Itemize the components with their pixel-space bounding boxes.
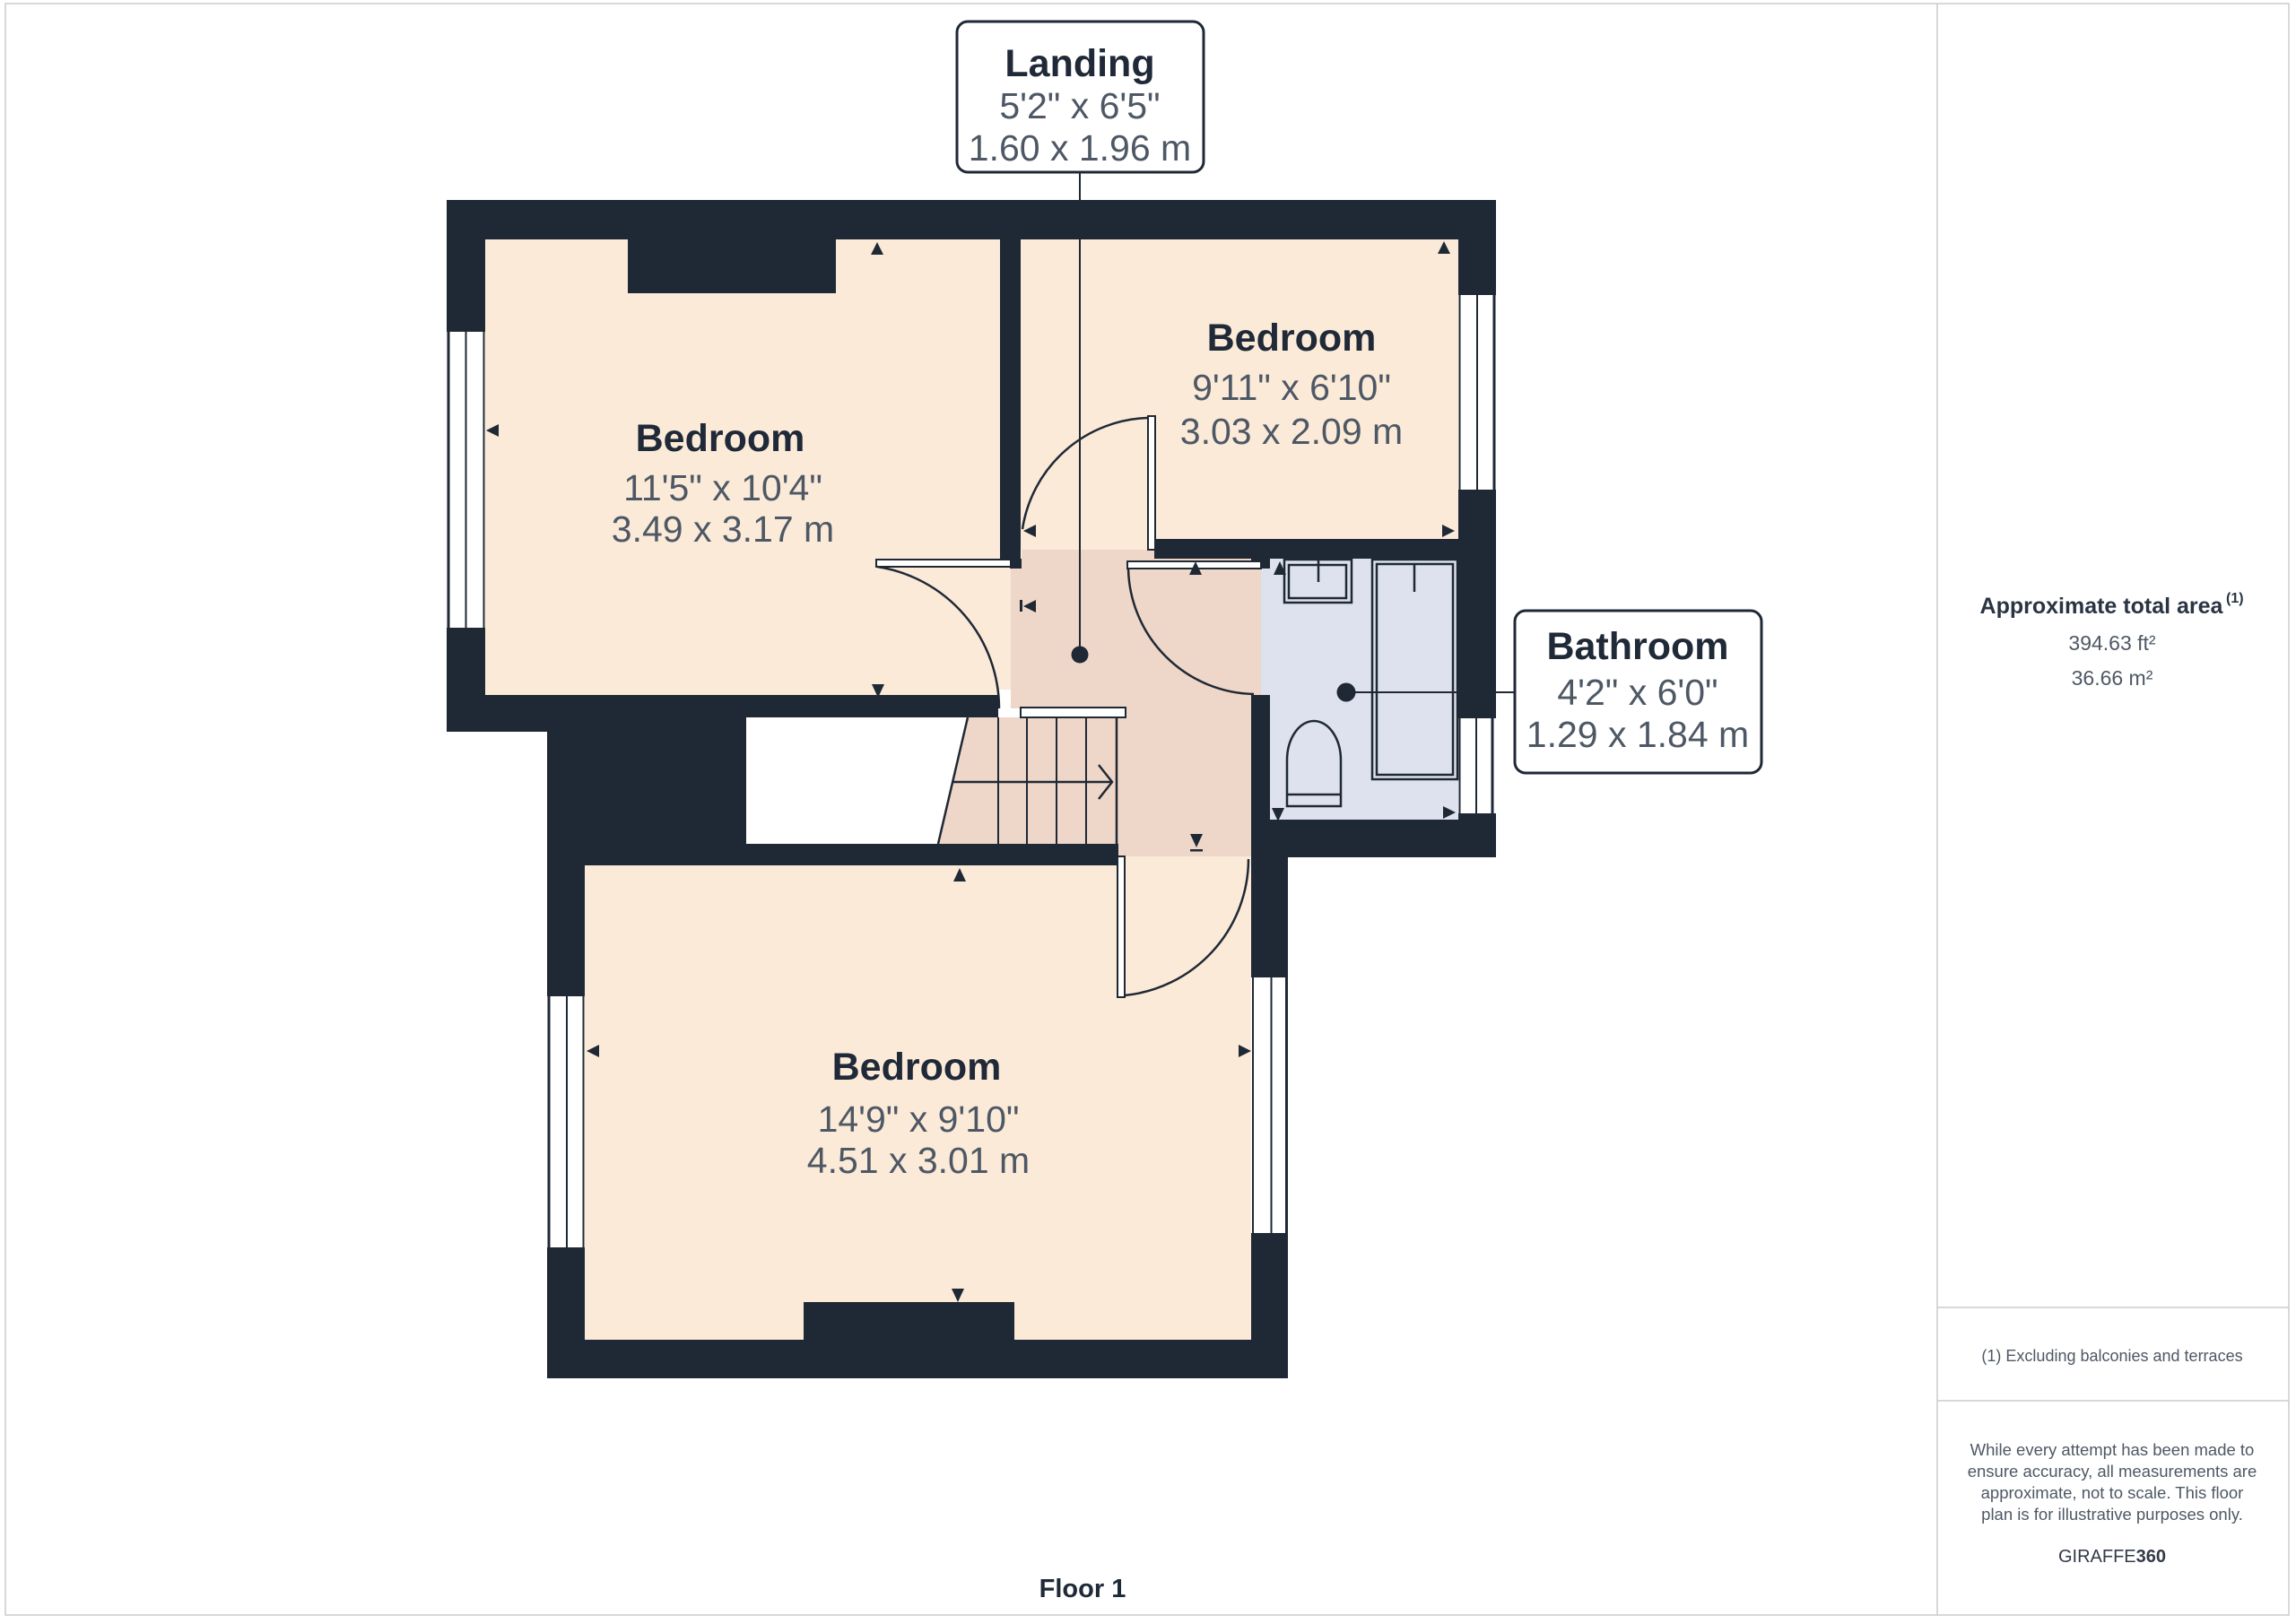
svg-text:While every attempt has been m: While every attempt has been made to	[1970, 1440, 2255, 1459]
svg-text:Approximate total area: Approximate total area	[1980, 594, 2224, 619]
svg-text:4'2" x 6'0": 4'2" x 6'0"	[1557, 672, 1718, 713]
svg-text:5'2" x 6'5": 5'2" x 6'5"	[999, 85, 1160, 126]
svg-text:394.63 ft²: 394.63 ft²	[2068, 631, 2156, 655]
svg-text:14'9" x 9'10": 14'9" x 9'10"	[818, 1099, 1020, 1140]
svg-text:1.60 x 1.96 m: 1.60 x 1.96 m	[969, 127, 1191, 169]
svg-text:3.49 x 3.17 m: 3.49 x 3.17 m	[612, 508, 834, 550]
svg-text:Bathroom: Bathroom	[1546, 625, 1728, 668]
svg-text:Floor 1: Floor 1	[1039, 1575, 1126, 1603]
svg-text:9'11" x 6'10": 9'11" x 6'10"	[1192, 367, 1391, 408]
svg-text:(1): (1)	[2226, 591, 2244, 606]
svg-text:3.03 x 2.09 m: 3.03 x 2.09 m	[1180, 411, 1403, 452]
svg-text:ensure accuracy, all measureme: ensure accuracy, all measurements are	[1968, 1462, 2257, 1481]
svg-text:Bedroom: Bedroom	[636, 417, 805, 460]
svg-text:Landing: Landing	[1004, 42, 1154, 85]
svg-text:approximate, not to scale. Thi: approximate, not to scale. This floor	[1981, 1483, 2244, 1502]
svg-text:11'5" x 10'4": 11'5" x 10'4"	[623, 467, 822, 508]
svg-text:GIRAFFE360: GIRAFFE360	[2058, 1547, 2166, 1567]
svg-text:1.29 x 1.84 m: 1.29 x 1.84 m	[1526, 714, 1749, 755]
svg-text:plan is for illustrative purpo: plan is for illustrative purposes only.	[1981, 1505, 2243, 1524]
svg-text:Bedroom: Bedroom	[1207, 317, 1377, 360]
svg-text:36.66 m²: 36.66 m²	[2072, 666, 2153, 690]
svg-text:(1) Excluding balconies and te: (1) Excluding balconies and terraces	[1981, 1347, 2242, 1365]
svg-text:4.51 x 3.01 m: 4.51 x 3.01 m	[807, 1140, 1030, 1181]
svg-text:Bedroom: Bedroom	[832, 1046, 1002, 1089]
